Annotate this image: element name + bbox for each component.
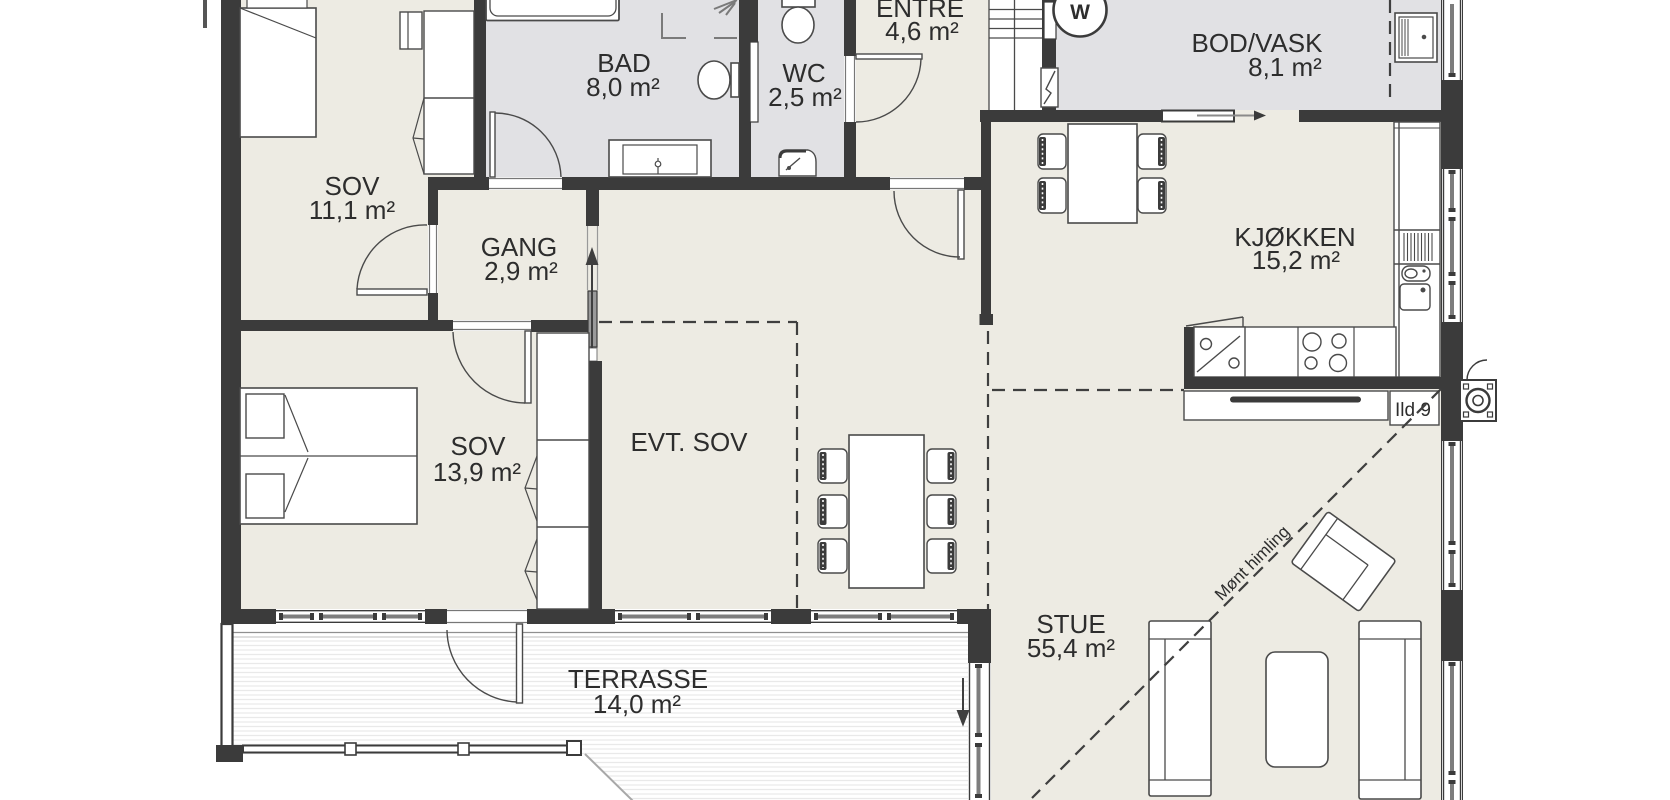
svg-text:14,0 m²: 14,0 m² — [593, 689, 681, 719]
svg-text:W: W — [1070, 1, 1090, 24]
svg-text:11,1 m²: 11,1 m² — [309, 195, 396, 225]
svg-text:8,1 m²: 8,1 m² — [1248, 52, 1322, 82]
svg-text:15,2 m²: 15,2 m² — [1252, 245, 1340, 275]
svg-text:13,9 m²: 13,9 m² — [433, 457, 521, 487]
svg-text:EVT. SOV: EVT. SOV — [630, 427, 748, 457]
svg-text:2,5 m²: 2,5 m² — [768, 82, 842, 112]
svg-text:55,4 m²: 55,4 m² — [1027, 633, 1115, 663]
svg-text:2,9 m²: 2,9 m² — [484, 256, 558, 286]
svg-text:4,6 m²: 4,6 m² — [885, 16, 959, 46]
svg-text:8,0 m²: 8,0 m² — [586, 72, 660, 102]
svg-text:Ild 9: Ild 9 — [1395, 400, 1431, 421]
